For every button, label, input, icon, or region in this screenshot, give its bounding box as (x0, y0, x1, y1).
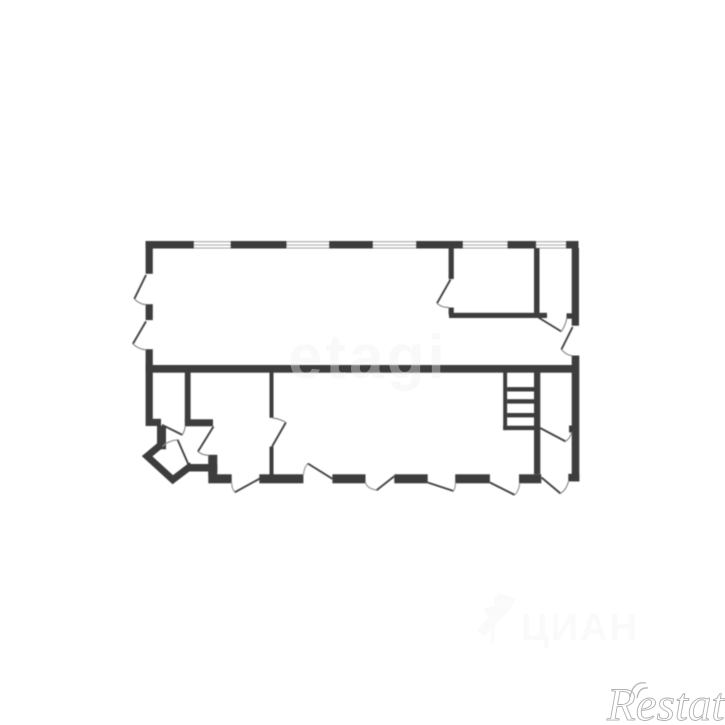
svg-text:ЦИАН: ЦИАН (521, 607, 639, 649)
svg-text:Restate: Restate (606, 679, 725, 725)
svg-text:etagi: etagi (288, 323, 448, 392)
